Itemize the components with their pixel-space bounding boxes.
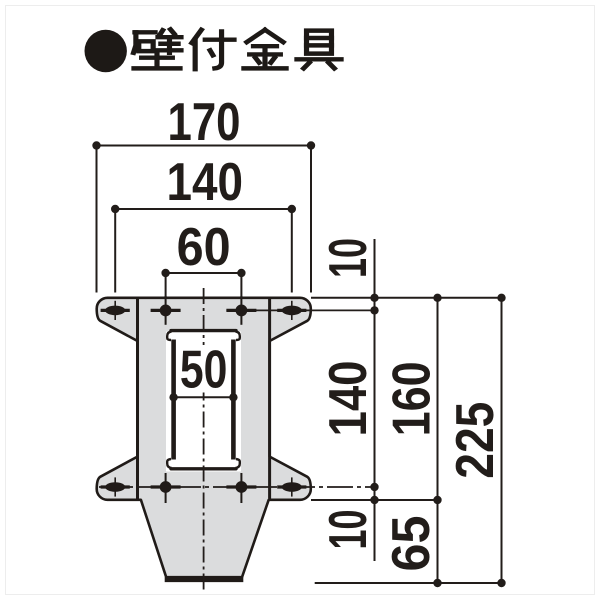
svg-text:65: 65 [382, 516, 441, 572]
svg-text:160: 160 [383, 361, 442, 436]
svg-text:50: 50 [180, 341, 228, 400]
svg-text:225: 225 [446, 402, 505, 479]
svg-text:10: 10 [319, 238, 378, 278]
svg-text:10: 10 [319, 510, 378, 550]
svg-text:140: 140 [167, 153, 244, 212]
svg-text:60: 60 [177, 218, 231, 277]
svg-text:140: 140 [319, 361, 378, 437]
svg-text:170: 170 [168, 93, 241, 152]
